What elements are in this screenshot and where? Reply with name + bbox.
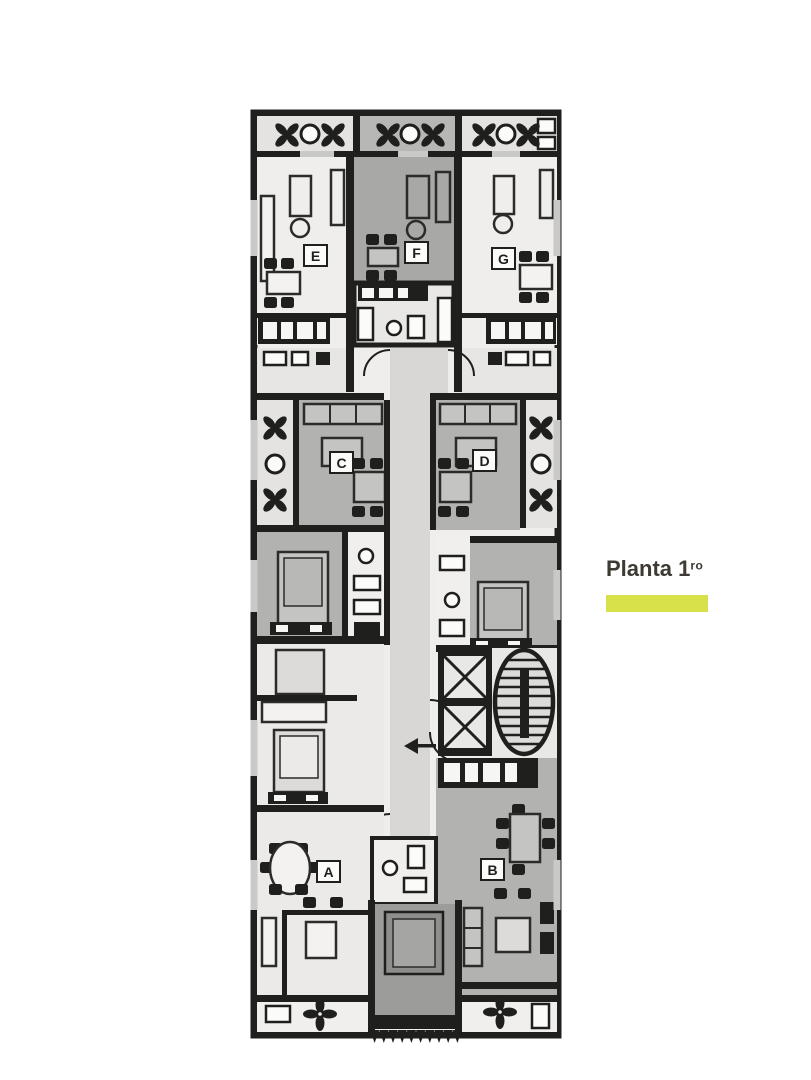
unit-label-b: B [480, 858, 505, 881]
unit-label-f: F [404, 241, 429, 264]
unit-label-a: A [316, 860, 341, 883]
sofa-icon [464, 908, 482, 966]
floor-plan-drawing [0, 0, 811, 1080]
bathroom-fixture-icon [354, 283, 454, 345]
balcony-top [257, 113, 557, 158]
balcony-left [257, 400, 299, 528]
kitchen-counter-icon [438, 758, 538, 788]
balcony-right [520, 400, 557, 528]
elevator-icon [438, 648, 492, 756]
floor-title: Planta 1ro [606, 556, 746, 582]
floor-title-text: Planta 1 [606, 556, 690, 581]
unit-label-g: G [491, 247, 516, 270]
page: E F G C D A B Planta 1ro [0, 0, 811, 1080]
unit-a-room [257, 805, 384, 1000]
bed-icon [276, 650, 324, 694]
unit-a-bedrooms [257, 644, 384, 805]
center-dark-bedroom [368, 900, 462, 1035]
sofa-icon [262, 918, 276, 966]
balcony-bottom-right [462, 995, 557, 1032]
unit-label-d: D [472, 449, 497, 472]
balcony-bottom-left [257, 995, 368, 1032]
unit-c-bedroom [257, 532, 348, 645]
bathroom-fixture-icon [359, 549, 373, 563]
bathroom-fixture-icon [383, 861, 397, 875]
title-underline [606, 595, 708, 612]
floor-title-superscript: ro [690, 559, 703, 573]
unit-d-bedroom [470, 543, 557, 650]
staircase-icon [492, 648, 557, 758]
unit-label-c: C [329, 451, 354, 474]
center-bathroom [372, 838, 436, 904]
unit-label-e: E [303, 244, 328, 267]
bathroom-fixture-icon [445, 593, 459, 607]
